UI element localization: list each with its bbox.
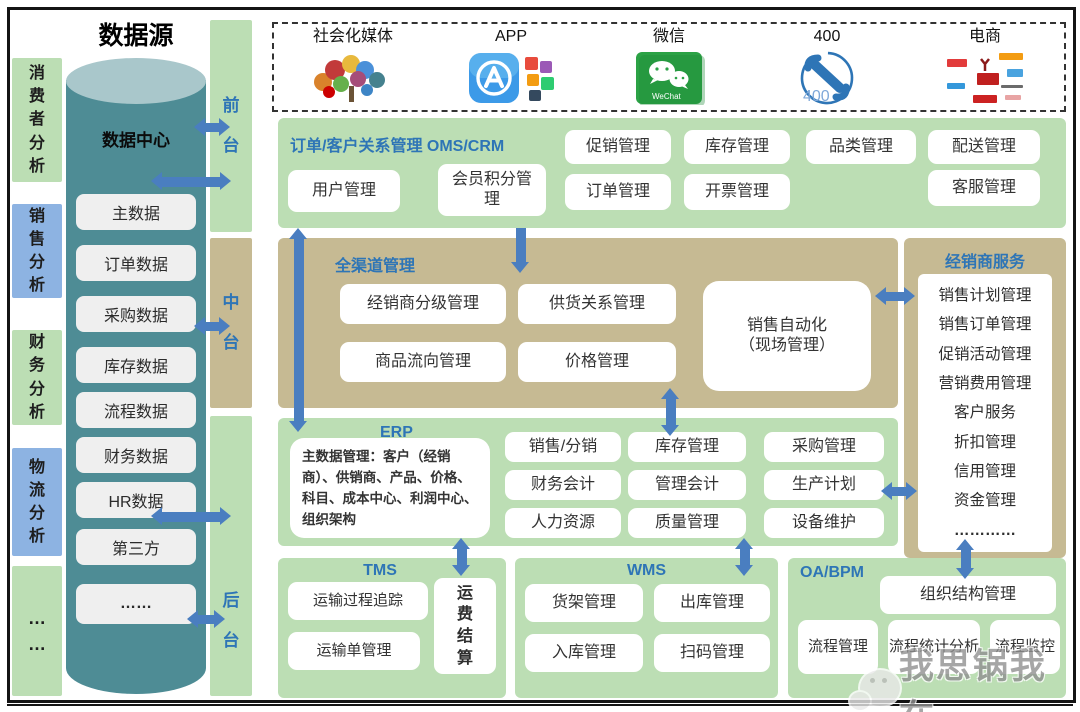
channel-400: 400 400 (748, 24, 906, 110)
omni-channel-title: 全渠道管理 (335, 252, 415, 276)
cylinder-top-ellipse (66, 58, 206, 104)
front-office-title: 订单/客户关系管理 OMS/CRM (290, 132, 504, 156)
arrow-omni-erp (666, 399, 676, 425)
phone-400-icon: 400 (748, 46, 906, 110)
box-sales-distribution: 销售/分销 (505, 432, 621, 462)
box-price-mgmt: 价格管理 (518, 342, 676, 382)
channel-label: 电商 (969, 28, 1001, 46)
cylinder-item-master-data: 主数据 (76, 194, 196, 230)
wechat-icon: WeChat (590, 46, 748, 110)
dealer-service-title: 经销商服务 (904, 248, 1066, 272)
sidebar-label: 消费者分析 (28, 62, 46, 178)
social-media-icon (274, 46, 432, 110)
tms-title: TMS (320, 562, 440, 580)
box-invoice-mgmt: 开票管理 (684, 174, 790, 210)
arrow-erp-tms (457, 549, 467, 565)
erp-title: ERP (380, 424, 413, 442)
box-inventory-mgmt-erp: 库存管理 (628, 432, 746, 462)
arrow-front-erp-vertical (294, 239, 304, 421)
page-title: 数据源 (66, 16, 206, 52)
box-org-structure-mgmt: 组织结构管理 (880, 576, 1056, 614)
box-scan-code-mgmt: 扫码管理 (654, 634, 770, 672)
box-financial-accounting: 财务会计 (505, 470, 621, 500)
box-outbound-mgmt: 出库管理 (654, 584, 770, 622)
box-delivery-mgmt: 配送管理 (928, 130, 1040, 164)
sidebar-label: 财务分析 (28, 331, 46, 424)
cylinder-item-order-data: 订单数据 (76, 245, 196, 281)
arrow-cylinder-front-tier (205, 123, 219, 132)
sidebar-item-finance-analysis: 财务分析 (12, 330, 62, 425)
channels-strip: 社会化媒体 APP (272, 22, 1066, 112)
tier-bar-back: 后台 (210, 416, 252, 696)
cylinder-item-third-party: 第三方 (76, 529, 196, 565)
box-customer-service-mgmt: 客服管理 (928, 170, 1040, 206)
box-transport-order-mgmt: 运输单管理 (288, 632, 420, 670)
dealer-item-discount-mgmt: 折扣管理 (954, 435, 1016, 451)
cylinder-item-purchase-data: 采购数据 (76, 296, 196, 332)
phone-number-text: 400 (803, 88, 830, 105)
box-inbound-mgmt: 入库管理 (525, 634, 643, 672)
cylinder-item-process-data: 流程数据 (76, 392, 196, 428)
sidebar-label: 销售分析 (28, 205, 46, 298)
dealer-item-marketing-expense: 营销费用管理 (938, 376, 1031, 392)
dealer-item-sales-order: 销售订单管理 (938, 317, 1031, 333)
arrow-sales-automation-dealer (886, 292, 904, 301)
wechat-caption: WeChat (652, 92, 682, 101)
box-user-mgmt: 用户管理 (288, 170, 400, 212)
sidebar-item-consumer-analysis: 消费者分析 (12, 58, 62, 182)
box-transport-tracking: 运输过程追踪 (288, 582, 428, 620)
channel-app: APP (432, 24, 590, 110)
box-order-mgmt: 订单管理 (565, 174, 671, 210)
dealer-item-funds-mgmt: 资金管理 (954, 493, 1016, 509)
cylinder-item-inventory-data: 库存数据 (76, 347, 196, 383)
diagram-canvas: 数据源 消费者分析 销售分析 财务分析 物流分析 … … 数据中心 主数据 订单… (0, 0, 1080, 712)
box-goods-flow-mgmt: 商品流向管理 (340, 342, 506, 382)
chat-bubbles-icon (848, 664, 899, 712)
box-freight-settlement: 运费结算 (434, 578, 496, 674)
ecommerce-logos-icon (906, 46, 1064, 110)
box-supply-relation-mgmt: 供货关系管理 (518, 284, 676, 324)
arrow-front-to-omni (516, 228, 526, 262)
box-sales-automation: 销售自动化 （现场管理） (703, 281, 871, 391)
sidebar-item-more: … … (12, 566, 62, 696)
sidebar-item-logistics-analysis: 物流分析 (12, 448, 62, 556)
box-equipment-maintenance: 设备维护 (764, 508, 884, 538)
freight-settlement-label: 运费结算 (456, 583, 474, 669)
box-procurement-mgmt: 采购管理 (764, 432, 884, 462)
dealer-item-customer-service: 客户服务 (954, 405, 1016, 421)
arrow-cylinder-analysis-lower (162, 512, 220, 522)
arrow-erp-wms (740, 549, 750, 565)
channel-label: 400 (814, 28, 841, 46)
channel-label: 微信 (653, 28, 685, 46)
arrow-erp-dealer (892, 487, 906, 496)
dealer-item-sales-plan: 销售计划管理 (938, 288, 1031, 304)
box-production-planning: 生产计划 (764, 470, 884, 500)
app-store-icon (432, 46, 590, 110)
box-inventory-mgmt-fo: 库存管理 (684, 130, 790, 164)
box-human-resources: 人力资源 (505, 508, 621, 538)
sidebar-label: 物流分析 (28, 456, 46, 549)
cylinder-item-finance-data: 财务数据 (76, 437, 196, 473)
data-center-title: 数据中心 (66, 126, 206, 151)
arrow-cylinder-middle-tier (205, 322, 219, 331)
arrow-dealer-oabpm (961, 550, 971, 568)
box-promotion-mgmt: 促销管理 (565, 130, 671, 164)
sidebar-label: … … (27, 605, 47, 657)
channel-wechat: 微信 WeChat (590, 24, 748, 110)
arrow-cylinder-back-tier (198, 615, 214, 624)
channel-ecommerce: 电商 (906, 24, 1064, 110)
box-shelf-mgmt: 货架管理 (525, 584, 643, 622)
channel-social-media: 社会化媒体 (274, 24, 432, 110)
box-master-data-mgmt: 主数据管理：客户（经销商）、供销商、产品、价格、科目、成本中心、利润中心、组织架… (290, 438, 490, 538)
box-dealer-grading-mgmt: 经销商分级管理 (340, 284, 506, 324)
dealer-item-credit-mgmt: 信用管理 (954, 464, 1016, 480)
channel-label: APP (495, 28, 527, 46)
sidebar-item-sales-analysis: 销售分析 (12, 204, 62, 298)
dealer-item-promo-activity: 促销活动管理 (938, 347, 1031, 363)
box-member-points-mgmt: 会员积分管理 (438, 164, 546, 216)
box-quality-mgmt: 质量管理 (628, 508, 746, 538)
dealer-service-list: 销售计划管理 销售订单管理 促销活动管理 营销费用管理 客户服务 折扣管理 信用… (918, 274, 1052, 552)
dealer-item-more: ………… (954, 523, 1016, 539)
cylinder-item-more: …… (76, 584, 196, 624)
channel-label: 社会化媒体 (313, 28, 393, 46)
box-management-accounting: 管理会计 (628, 470, 746, 500)
watermark: 我思锅我在 (848, 638, 1080, 712)
box-category-mgmt: 品类管理 (806, 130, 916, 164)
watermark-text: 我思锅我在 (899, 638, 1080, 712)
arrow-cylinder-analysis-upper (162, 177, 220, 187)
oa-bpm-title: OA/BPM (800, 564, 864, 582)
